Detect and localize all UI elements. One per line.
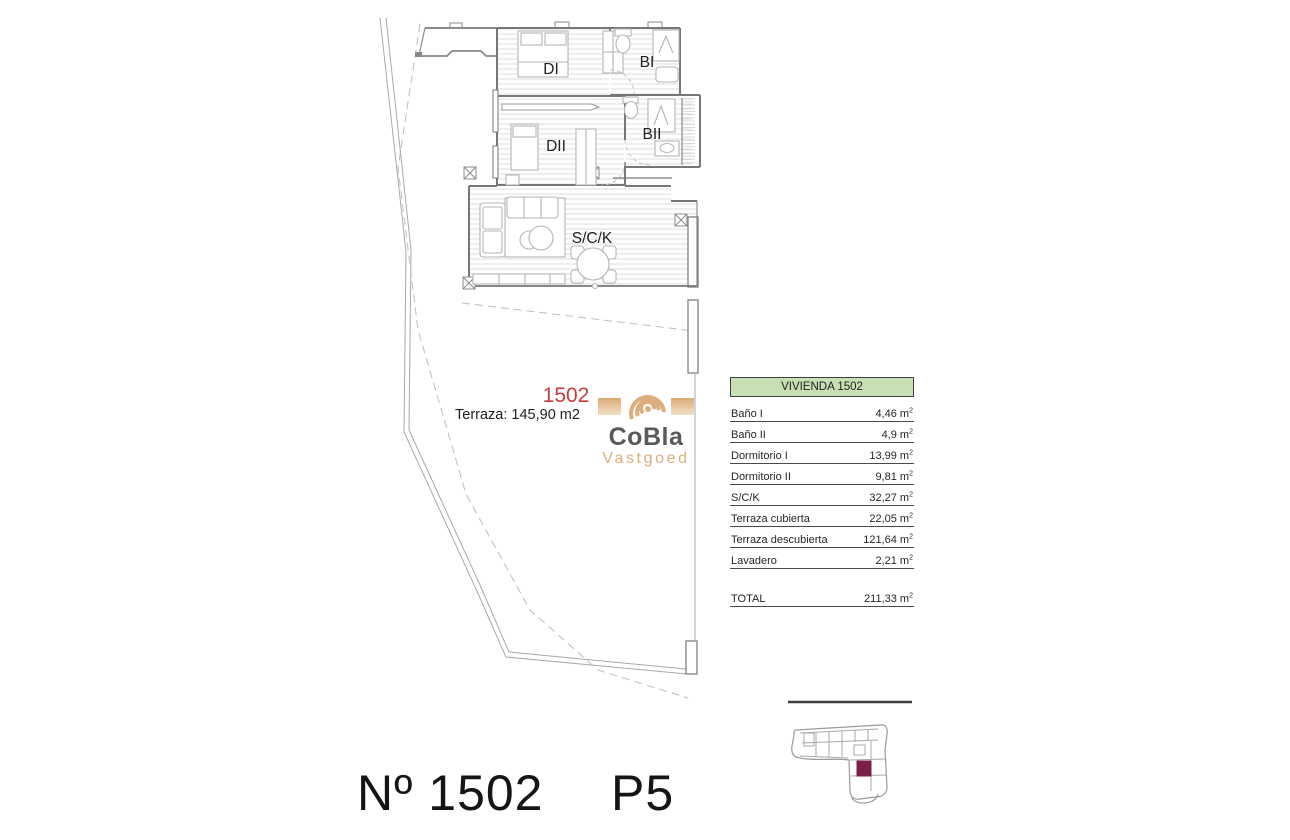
area-row-value: 22,05 m2 [869,513,913,525]
footer-unit-number: Nº 1502 [357,768,544,818]
area-row-value: 32,27 m2 [869,492,913,504]
area-row-value: 13,99 m2 [869,450,913,462]
area-row: Terraza cubierta 22,05 m2 [730,506,914,527]
table-gap [730,569,914,586]
area-row-value: 9,81 m2 [875,471,913,483]
area-row-label: Terraza cubierta [731,513,810,525]
room-label-salon: S/C/K [572,230,613,247]
room-label-bano2: BII [643,126,662,143]
area-row-label: Dormitorio I [731,450,788,462]
terrace-area-label: Terraza: 145,90 m2 [455,407,580,423]
area-row-label: Baño I [731,408,763,420]
shell-icon [623,384,669,424]
area-row-label: Lavadero [731,555,777,567]
footer-floor-number: P5 [611,768,674,818]
area-row-label: Dormitorio II [731,471,791,483]
building-key-plan [778,693,928,813]
area-row: Lavadero 2,21 m2 [730,548,914,569]
logo-bar-right-icon [671,398,694,415]
area-row: Baño I 4,46 m2 [730,401,914,422]
area-row-value: 121,64 m2 [863,534,913,546]
area-row-label: Terraza descubierta [731,534,828,546]
room-label-dormitorio1: DI [543,61,559,78]
area-row: S/C/K 32,27 m2 [730,485,914,506]
area-table: VIVIENDA 1502 Baño I 4,46 m2 Baño II 4,9… [730,377,914,607]
area-row-label: Baño II [731,429,766,441]
highlighted-unit-cell [857,761,871,776]
room-label-dormitorio2: DII [546,138,566,155]
area-row-value: 4,9 m2 [882,429,913,441]
area-row-value: 2,21 m2 [875,555,913,567]
logo-name: CoBla [594,425,698,450]
logo-bar-left-icon [598,398,621,415]
area-row: Dormitorio II 9,81 m2 [730,464,914,485]
area-row: Baño II 4,9 m2 [730,422,914,443]
total-value: 211,33 m2 [864,593,913,605]
table-rows: Baño I 4,46 m2 Baño II 4,9 m2 Dormitorio… [730,401,914,569]
floor-plan-drawing: DI BI DII BII S/C/K 1502 Terraza: 145,90… [360,0,730,700]
total-label: TOTAL [731,593,765,605]
table-header: VIVIENDA 1502 [730,377,914,397]
room-label-bano1: BI [640,54,655,71]
unit-number-label: 1502 [543,384,590,407]
cobla-logo: CoBla Vastgoed [594,383,698,468]
area-row-value: 4,46 m2 [875,408,913,420]
logo-subtitle: Vastgoed [594,450,698,468]
sliding-partition [502,104,599,110]
building-outline [792,725,887,803]
area-row: Terraza descubierta 121,64 m2 [730,527,914,548]
area-row: Dormitorio I 13,99 m2 [730,443,914,464]
area-row-label: S/C/K [731,492,760,504]
table-total-row: TOTAL 211,33 m2 [730,586,914,607]
